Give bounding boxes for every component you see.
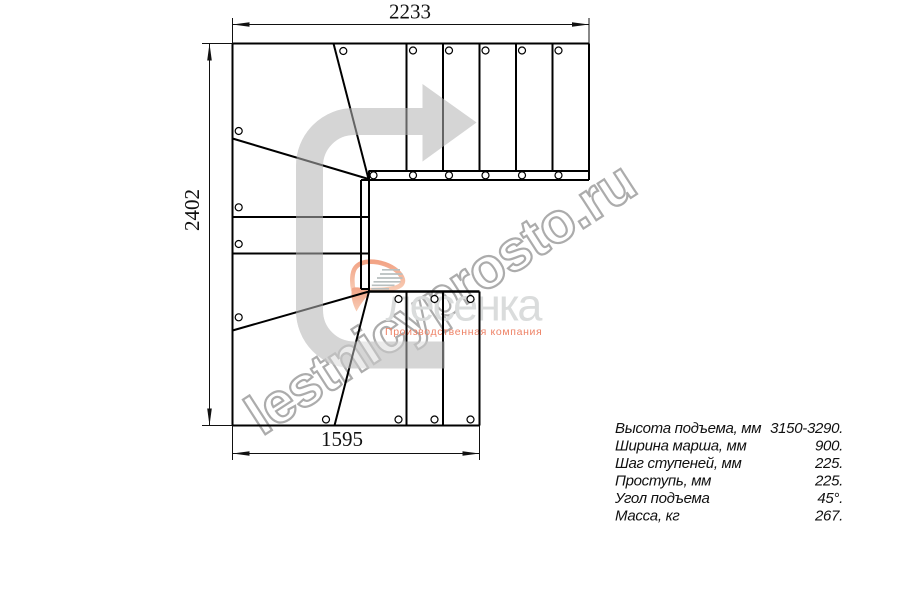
svg-text:Производственная компания: Производственная компания xyxy=(385,326,542,338)
svg-text:45°.: 45°. xyxy=(817,490,843,507)
svg-text:Ширина марша, мм: Ширина марша, мм xyxy=(615,438,746,455)
svg-text:Проступь, мм: Проступь, мм xyxy=(615,473,711,490)
svg-text:2402: 2402 xyxy=(180,189,204,231)
svg-text:Шаг ступеней, мм: Шаг ступеней, мм xyxy=(615,455,742,472)
svg-text:Угол подъема: Угол подъема xyxy=(614,490,710,507)
svg-text:267.: 267. xyxy=(814,508,843,525)
svg-text:225.: 225. xyxy=(814,455,843,472)
svg-text:225.: 225. xyxy=(814,473,843,490)
svg-text:лесенка: лесенка xyxy=(386,280,544,331)
svg-text:900.: 900. xyxy=(815,438,843,455)
svg-text:1595: 1595 xyxy=(321,427,363,451)
svg-text:Высота подъема, мм: Высота подъема, мм xyxy=(615,420,761,437)
svg-text:2233: 2233 xyxy=(389,0,431,24)
svg-text:3150-3290.: 3150-3290. xyxy=(770,420,843,437)
svg-text:Масса, кг: Масса, кг xyxy=(615,508,680,525)
